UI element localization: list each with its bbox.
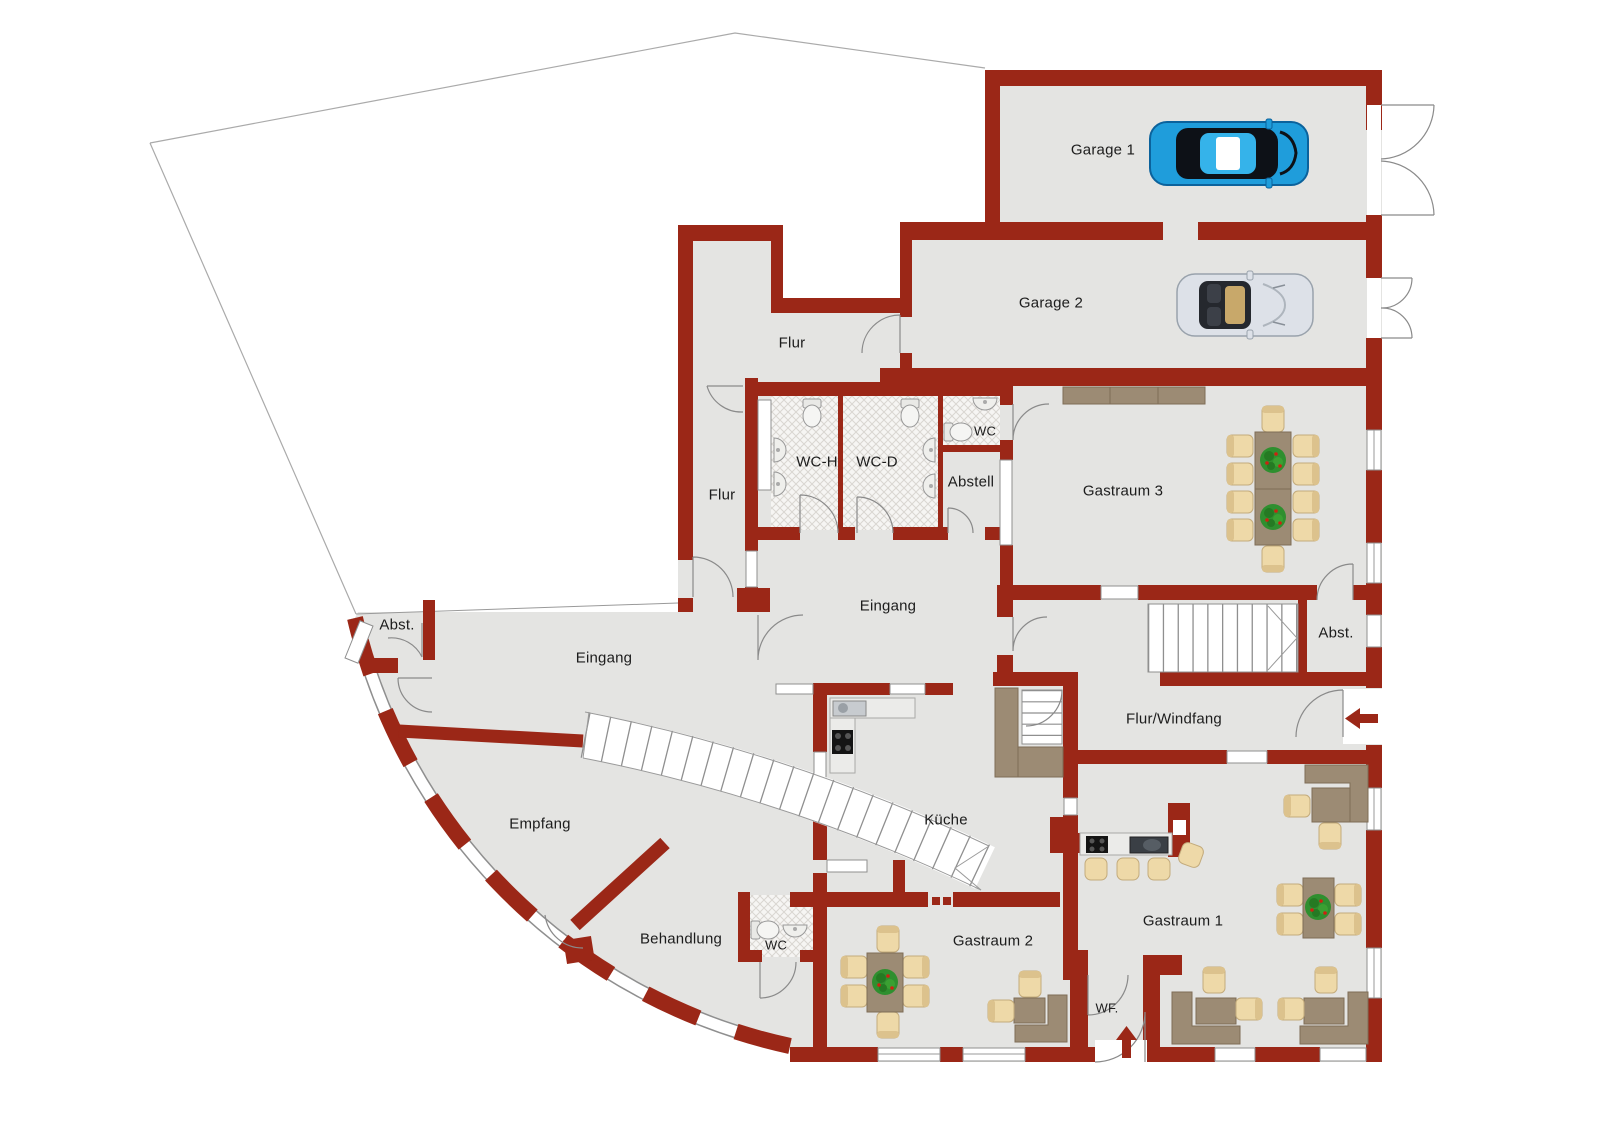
label-abstell: Abstell [948,474,994,491]
label-wc-behandlung: WC [765,938,787,953]
floorplan-drawing [0,0,1600,1132]
label-flur-top: Flur [779,335,806,352]
car-blue [1150,119,1308,188]
label-wc-h: WC-H [796,454,838,471]
label-behandlung: Behandlung [640,931,722,948]
floorplan-canvas: Garage 1 Garage 2 Flur WC-H WC-D WC Abst… [0,0,1600,1132]
label-garage1: Garage 1 [1071,142,1135,159]
label-gastraum2: Gastraum 2 [953,933,1033,950]
label-kueche: Küche [924,812,968,829]
label-abst-left: Abst. [379,617,414,634]
building-floor [355,70,1382,1062]
stairs-main [1148,604,1298,672]
label-gastraum3: Gastraum 3 [1083,483,1163,500]
label-empfang: Empfang [509,816,570,833]
stairs-nook [1022,690,1062,744]
label-garage2: Garage 2 [1019,295,1083,312]
label-wc-d: WC-D [856,454,898,471]
label-flur-left: Flur [709,487,736,504]
label-gastraum1: Gastraum 1 [1143,913,1223,930]
label-abst-right: Abst. [1318,625,1353,642]
label-eingang-left: Eingang [576,650,632,667]
label-wc-small: WC [974,424,996,439]
label-wf: WF. [1096,1001,1119,1016]
car-silver [1177,271,1313,339]
label-flur-windfang: Flur/Windfang [1126,711,1222,728]
label-eingang-center: Eingang [860,598,916,615]
